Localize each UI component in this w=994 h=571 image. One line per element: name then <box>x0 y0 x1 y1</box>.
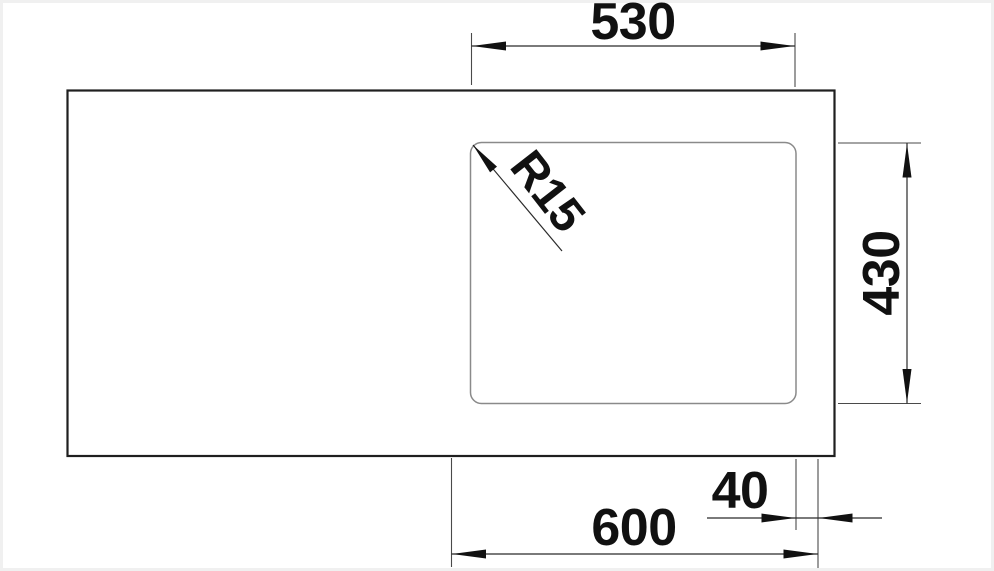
dimension-value: 530 <box>590 0 675 51</box>
dimension-value: 430 <box>853 230 911 315</box>
technical-drawing-page: 530 430 40 600 <box>0 0 994 571</box>
drawing-canvas: 530 430 40 600 <box>0 0 994 571</box>
dimension-value: 600 <box>591 499 676 557</box>
dimension-value: 40 <box>712 462 769 520</box>
